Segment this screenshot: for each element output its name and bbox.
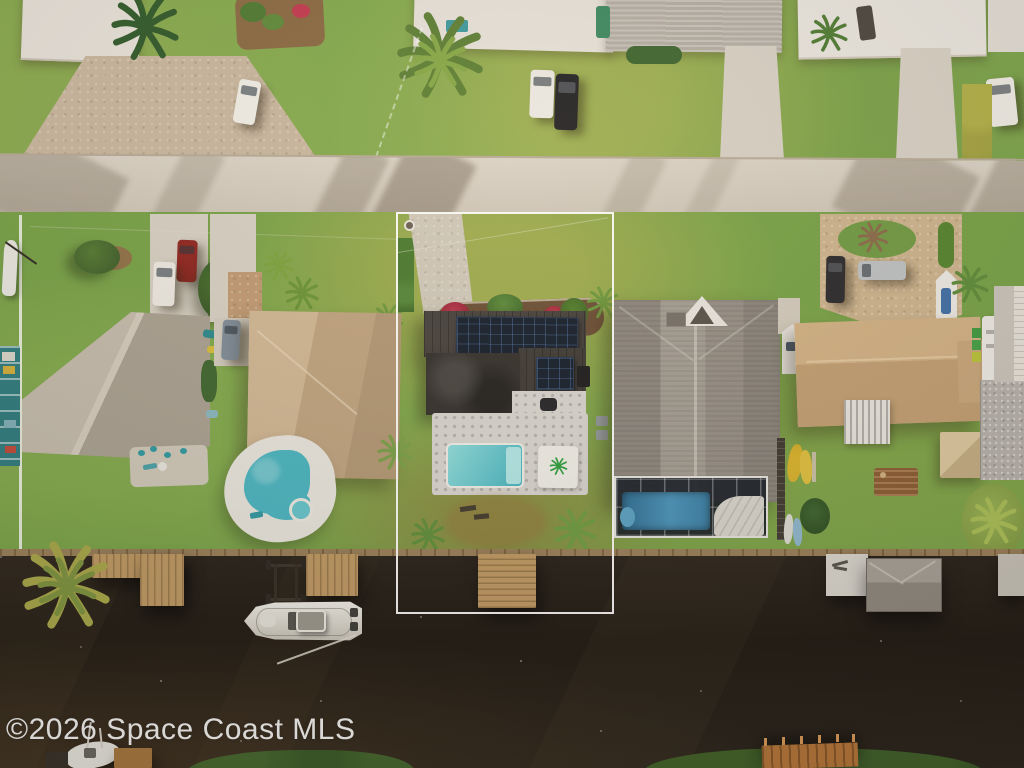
- dock-post: [782, 737, 785, 745]
- yard-clutter: [4, 420, 16, 428]
- car-windshield: [990, 84, 1012, 96]
- wood-dock: [306, 554, 358, 596]
- patio-chair-teal: [164, 452, 171, 458]
- tree-shadow: [832, 153, 980, 218]
- dark-bush: [800, 498, 830, 534]
- yellow-hedge: [962, 84, 992, 162]
- house-c-ridge: [694, 308, 697, 494]
- enclosed-pool: [622, 492, 710, 530]
- pool-b-shallow: [252, 458, 280, 484]
- lift-beam: [266, 564, 306, 567]
- parked-truck-silver: [858, 261, 906, 280]
- car-windshield: [225, 325, 239, 334]
- driveway-top-center: [720, 46, 784, 160]
- green-bin: [972, 340, 981, 350]
- car-windshield: [240, 85, 258, 96]
- gravel-strip: [980, 380, 1024, 480]
- patio-chair-teal: [150, 446, 157, 452]
- dock-post: [852, 734, 855, 742]
- bare-tree-icon: [854, 220, 892, 256]
- parked-truck-dark: [826, 256, 846, 303]
- car-windshield: [828, 262, 842, 272]
- palm-tree-icon: [966, 490, 1022, 554]
- wood-dock-arm: [140, 554, 184, 606]
- patio-chair-teal: [180, 448, 187, 454]
- car-windshield: [180, 246, 195, 255]
- boat-t-top: [296, 610, 326, 632]
- yellow-bin: [972, 352, 981, 362]
- shrub: [262, 14, 284, 30]
- tree-shadow: [0, 153, 129, 218]
- parked-truck-black: [554, 74, 579, 131]
- parked-car-bluegray: [221, 320, 241, 361]
- car-windshield: [558, 82, 575, 94]
- outboard-engine: [350, 622, 358, 631]
- water-specks: [0, 556, 2, 558]
- chimney: [666, 312, 686, 327]
- car-windshield: [862, 264, 872, 276]
- patio-chair-teal: [138, 450, 145, 456]
- driveway-top-right: [896, 48, 958, 160]
- house-c-roof-texture: [614, 300, 780, 502]
- dock-post: [764, 738, 767, 746]
- outboard-engine: [350, 608, 358, 617]
- deck-chair: [880, 472, 886, 478]
- bottom-left-boat-console: [84, 748, 96, 758]
- yard-clutter: [2, 352, 15, 361]
- tree-shadow: [151, 153, 225, 218]
- parked-van-white: [152, 262, 176, 307]
- house-roof-top-gray: [606, 0, 783, 53]
- green-bin: [596, 6, 610, 38]
- bush-row: [626, 46, 682, 64]
- tree-shadow: [968, 153, 1024, 218]
- parked-car-white: [529, 70, 555, 119]
- patio-table: [158, 462, 167, 471]
- pole-shadow: [599, 153, 667, 218]
- shed-roof: [940, 432, 984, 478]
- mls-watermark: ©2026 Space Coast MLS: [6, 714, 355, 746]
- bottom-dock: [762, 742, 859, 768]
- paddle: [812, 452, 816, 482]
- house-e-white-band: [1014, 286, 1024, 382]
- pole-shadow: [681, 153, 740, 218]
- palm-tree-icon: [948, 260, 992, 310]
- kayak-blue: [206, 410, 218, 418]
- street: [0, 153, 1024, 218]
- bottom-left-structure: [46, 752, 68, 768]
- small-dock-right-edge: [998, 554, 1024, 596]
- spa-hot-tub: [289, 498, 313, 522]
- parked-car-red: [176, 240, 197, 283]
- palm-tree-icon: [806, 12, 852, 56]
- hedge: [938, 222, 954, 268]
- moored-boat: [244, 596, 362, 646]
- green-bin: [972, 328, 981, 338]
- bottom-left-dock: [114, 748, 152, 768]
- round-tree: [74, 240, 120, 274]
- red-bougainvillea: [292, 4, 310, 18]
- dock-post: [818, 735, 821, 743]
- yard-clutter: [5, 446, 16, 453]
- dock-post: [836, 734, 839, 742]
- aerial-photo-scene: ©2026 Space Coast MLS: [0, 0, 1024, 768]
- enclosed-spa: [620, 507, 635, 527]
- house-roof-top-far-right: [988, 0, 1024, 52]
- car-windshield: [156, 268, 173, 277]
- car-windshield: [533, 76, 551, 86]
- property-boundary-outline: [396, 212, 614, 614]
- white-lanai-roof: [714, 496, 764, 536]
- garage-door-white: [844, 400, 890, 444]
- lift-post: [266, 560, 271, 570]
- side-yard-bush: [201, 360, 217, 402]
- overhanging-palm-icon: [32, 548, 102, 628]
- dock-post: [800, 736, 803, 744]
- boat-bow-hatch: [260, 614, 276, 627]
- yard-clutter: [3, 366, 15, 374]
- palm-tree-icon: [104, 0, 186, 68]
